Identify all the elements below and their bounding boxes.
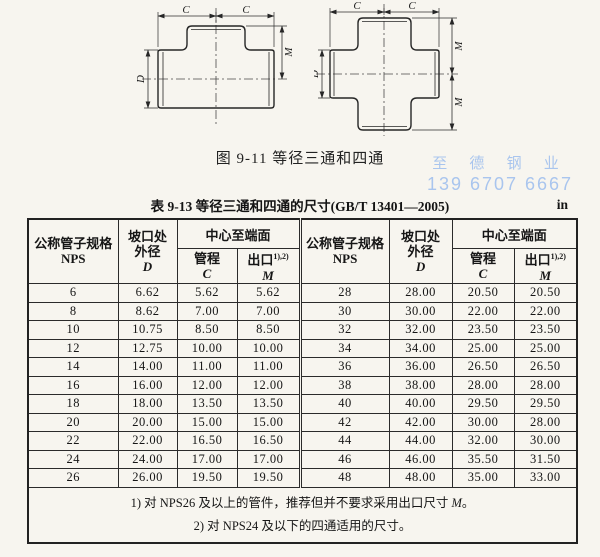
cell-nps: 36 bbox=[300, 358, 389, 377]
tee-label-c1: C bbox=[182, 4, 190, 16]
header-run-left: 管程 C bbox=[177, 249, 237, 284]
cell-outlet: 25.00 bbox=[514, 339, 577, 358]
table-row: 1414.0011.0011.00 3636.0026.5026.50 bbox=[28, 358, 577, 377]
cross-label-m-top: M bbox=[453, 41, 465, 52]
header-od-sym: D bbox=[119, 259, 177, 274]
cell-run: 17.00 bbox=[177, 450, 237, 469]
cell-run: 15.00 bbox=[177, 413, 237, 432]
cell-outlet: 7.00 bbox=[237, 302, 300, 321]
tee-diagram: C C M D bbox=[136, 2, 314, 134]
cross-label-m-bottom: M bbox=[453, 97, 465, 108]
cell-run: 7.00 bbox=[177, 302, 237, 321]
cell-nps: 30 bbox=[300, 302, 389, 321]
cell-nps: 12 bbox=[28, 339, 118, 358]
cell-od: 12.75 bbox=[118, 339, 177, 358]
header-od-right: 坡口处 外径 D bbox=[389, 219, 452, 284]
cell-outlet: 13.50 bbox=[237, 395, 300, 414]
header-nps-left: 公称管子规格 NPS bbox=[28, 219, 118, 284]
cell-od: 26.00 bbox=[118, 469, 177, 488]
header-outlet-zh: 出口1),2) bbox=[238, 249, 299, 267]
table-row: 66.625.625.62 2828.0020.5020.50 bbox=[28, 284, 577, 303]
header-nps-zh: 公称管子规格 bbox=[29, 236, 118, 251]
cell-od: 38.00 bbox=[389, 376, 452, 395]
cell-run: 25.00 bbox=[452, 339, 514, 358]
cell-run: 13.50 bbox=[177, 395, 237, 414]
table-row: 2424.0017.0017.00 4646.0035.5031.50 bbox=[28, 450, 577, 469]
cell-od: 28.00 bbox=[389, 284, 452, 303]
cell-nps: 40 bbox=[300, 395, 389, 414]
cell-nps: 32 bbox=[300, 321, 389, 340]
cell-outlet: 8.50 bbox=[237, 321, 300, 340]
cell-nps: 8 bbox=[28, 302, 118, 321]
scanned-document-page: C C M D C C M M D 图 9-11 等径三通和四通 至 bbox=[0, 0, 600, 557]
table-row: 1818.0013.5013.50 4040.0029.5029.50 bbox=[28, 395, 577, 414]
cell-nps: 16 bbox=[28, 376, 118, 395]
header-od-zh1: 坡口处 bbox=[390, 229, 452, 244]
cell-outlet: 10.00 bbox=[237, 339, 300, 358]
cell-od: 20.00 bbox=[118, 413, 177, 432]
cell-run: 35.00 bbox=[452, 469, 514, 488]
cell-od: 6.62 bbox=[118, 284, 177, 303]
table-row: 88.627.007.00 3030.0022.0022.00 bbox=[28, 302, 577, 321]
table-title: 表 9-13 等径三通和四通的尺寸(GB/T 13401—2005) bbox=[151, 199, 450, 214]
table-row: 1616.0012.0012.00 3838.0028.0028.00 bbox=[28, 376, 577, 395]
header-outlet-sym: M bbox=[515, 268, 577, 283]
header-od-left: 坡口处 外径 D bbox=[118, 219, 177, 284]
header-nps-zh: 公称管子规格 bbox=[302, 236, 389, 251]
cell-od: 18.00 bbox=[118, 395, 177, 414]
cross-label-c2: C bbox=[408, 0, 416, 12]
cell-od: 10.75 bbox=[118, 321, 177, 340]
header-nps-lat: NPS bbox=[29, 251, 118, 267]
cell-outlet: 26.50 bbox=[514, 358, 577, 377]
header-nps-right: 公称管子规格 NPS bbox=[300, 219, 389, 284]
cell-outlet: 31.50 bbox=[514, 450, 577, 469]
table-row: 2222.0016.5016.50 4444.0032.0030.00 bbox=[28, 432, 577, 451]
header-outlet-text: 出口 bbox=[247, 253, 273, 268]
cell-run: 22.00 bbox=[452, 302, 514, 321]
cell-outlet: 29.50 bbox=[514, 395, 577, 414]
table-row: 2626.0019.5019.50 4848.0035.0033.00 bbox=[28, 469, 577, 488]
note-1-variable: M bbox=[451, 496, 461, 510]
cell-od: 32.00 bbox=[389, 321, 452, 340]
notes-row: 1) 对 NPS26 及以上的管件，推荐但并不要求采用出口尺寸 M。 2) 对 … bbox=[28, 487, 577, 543]
dimensions-table: 公称管子规格 NPS 坡口处 外径 D 中心至端面 公称管子规格 NPS 坡口处… bbox=[27, 218, 578, 544]
cell-nps: 44 bbox=[300, 432, 389, 451]
cell-run: 10.00 bbox=[177, 339, 237, 358]
cell-nps: 46 bbox=[300, 450, 389, 469]
cell-nps: 20 bbox=[28, 413, 118, 432]
cell-run: 11.00 bbox=[177, 358, 237, 377]
cell-run: 20.50 bbox=[452, 284, 514, 303]
cell-outlet: 20.50 bbox=[514, 284, 577, 303]
header-od-sym: D bbox=[390, 259, 452, 274]
header-outlet-right: 出口1),2) M bbox=[514, 249, 577, 284]
cell-run: 29.50 bbox=[452, 395, 514, 414]
cell-nps: 48 bbox=[300, 469, 389, 488]
cell-run: 28.00 bbox=[452, 376, 514, 395]
header-run-sym: C bbox=[178, 266, 237, 281]
cell-od: 36.00 bbox=[389, 358, 452, 377]
note-1-period: 。 bbox=[462, 496, 475, 510]
cell-nps: 42 bbox=[300, 413, 389, 432]
cell-outlet: 5.62 bbox=[237, 284, 300, 303]
cell-outlet: 28.00 bbox=[514, 376, 577, 395]
tee-label-c2: C bbox=[242, 4, 250, 16]
cell-outlet: 28.00 bbox=[514, 413, 577, 432]
cell-run: 16.50 bbox=[177, 432, 237, 451]
cell-nps: 18 bbox=[28, 395, 118, 414]
header-od-zh2: 外径 bbox=[390, 244, 452, 259]
header-outlet-sup: 1),2) bbox=[273, 252, 288, 261]
cell-od: 44.00 bbox=[389, 432, 452, 451]
cell-outlet: 15.00 bbox=[237, 413, 300, 432]
cell-od: 24.00 bbox=[118, 450, 177, 469]
cell-od: 42.00 bbox=[389, 413, 452, 432]
cell-nps: 26 bbox=[28, 469, 118, 488]
table-row: 1010.758.508.50 3232.0023.5023.50 bbox=[28, 321, 577, 340]
header-od-zh2: 外径 bbox=[119, 244, 177, 259]
cell-run: 23.50 bbox=[452, 321, 514, 340]
note-2: 2) 对 NPS24 及以下的四通适用的尺寸。 bbox=[29, 515, 576, 538]
table-row: 2020.0015.0015.00 4242.0030.0028.00 bbox=[28, 413, 577, 432]
header-run-right: 管程 C bbox=[452, 249, 514, 284]
header-center-right: 中心至端面 bbox=[452, 219, 577, 249]
cell-run: 32.00 bbox=[452, 432, 514, 451]
table-unit: in bbox=[557, 197, 568, 213]
cell-outlet: 22.00 bbox=[514, 302, 577, 321]
cell-nps: 24 bbox=[28, 450, 118, 469]
cross-label-c1: C bbox=[353, 0, 361, 12]
cell-outlet: 23.50 bbox=[514, 321, 577, 340]
cell-nps: 6 bbox=[28, 284, 118, 303]
cell-run: 5.62 bbox=[177, 284, 237, 303]
cell-outlet: 16.50 bbox=[237, 432, 300, 451]
cell-nps: 34 bbox=[300, 339, 389, 358]
watermark-phone: 139 6707 6667 bbox=[420, 174, 580, 195]
cell-run: 12.00 bbox=[177, 376, 237, 395]
cell-nps: 38 bbox=[300, 376, 389, 395]
cell-od: 48.00 bbox=[389, 469, 452, 488]
cell-od: 14.00 bbox=[118, 358, 177, 377]
cell-nps: 14 bbox=[28, 358, 118, 377]
header-outlet-zh: 出口1),2) bbox=[515, 249, 577, 267]
tee-label-m: M bbox=[283, 47, 295, 58]
cross-label-d: D bbox=[314, 70, 321, 79]
cell-od: 16.00 bbox=[118, 376, 177, 395]
cross-diagram: C C M M D bbox=[314, 0, 466, 140]
cell-outlet: 30.00 bbox=[514, 432, 577, 451]
header-nps-lat: NPS bbox=[302, 251, 389, 267]
cell-nps: 22 bbox=[28, 432, 118, 451]
cell-run: 35.50 bbox=[452, 450, 514, 469]
cell-nps: 28 bbox=[300, 284, 389, 303]
note-1-text: 1) 对 NPS26 及以上的管件，推荐但并不要求采用出口尺寸 bbox=[131, 496, 452, 510]
cell-run: 30.00 bbox=[452, 413, 514, 432]
watermark-company: 至 德 钢 业 bbox=[420, 152, 580, 173]
cell-outlet: 11.00 bbox=[237, 358, 300, 377]
cell-run: 19.50 bbox=[177, 469, 237, 488]
cell-od: 46.00 bbox=[389, 450, 452, 469]
table-notes: 1) 对 NPS26 及以上的管件，推荐但并不要求采用出口尺寸 M。 2) 对 … bbox=[28, 487, 577, 543]
cell-od: 40.00 bbox=[389, 395, 452, 414]
cell-od: 22.00 bbox=[118, 432, 177, 451]
cell-outlet: 19.50 bbox=[237, 469, 300, 488]
header-run-zh: 管程 bbox=[178, 251, 237, 266]
cell-outlet: 12.00 bbox=[237, 376, 300, 395]
table-title-row: 表 9-13 等径三通和四通的尺寸(GB/T 13401—2005) in bbox=[0, 195, 600, 215]
table-row: 1212.7510.0010.00 3434.0025.0025.00 bbox=[28, 339, 577, 358]
cell-nps: 10 bbox=[28, 321, 118, 340]
header-outlet-sup: 1),2) bbox=[551, 252, 566, 261]
cell-run: 8.50 bbox=[177, 321, 237, 340]
cross-extension-lines bbox=[318, 8, 457, 130]
cell-od: 34.00 bbox=[389, 339, 452, 358]
note-1: 1) 对 NPS26 及以上的管件，推荐但并不要求采用出口尺寸 M。 bbox=[29, 492, 576, 515]
cell-run: 26.50 bbox=[452, 358, 514, 377]
header-center-left: 中心至端面 bbox=[177, 219, 300, 249]
header-run-zh: 管程 bbox=[453, 251, 514, 266]
watermark: 至 德 钢 业 139 6707 6667 bbox=[420, 152, 580, 195]
cell-outlet: 33.00 bbox=[514, 469, 577, 488]
header-outlet-text: 出口 bbox=[525, 253, 551, 268]
header-run-sym: C bbox=[453, 266, 514, 281]
header-od-zh1: 坡口处 bbox=[119, 229, 177, 244]
cell-od: 30.00 bbox=[389, 302, 452, 321]
tee-label-d: D bbox=[136, 75, 147, 84]
header-outlet-left: 出口1),2) M bbox=[237, 249, 300, 284]
header-outlet-sym: M bbox=[238, 268, 299, 283]
cell-od: 8.62 bbox=[118, 302, 177, 321]
cell-outlet: 17.00 bbox=[237, 450, 300, 469]
